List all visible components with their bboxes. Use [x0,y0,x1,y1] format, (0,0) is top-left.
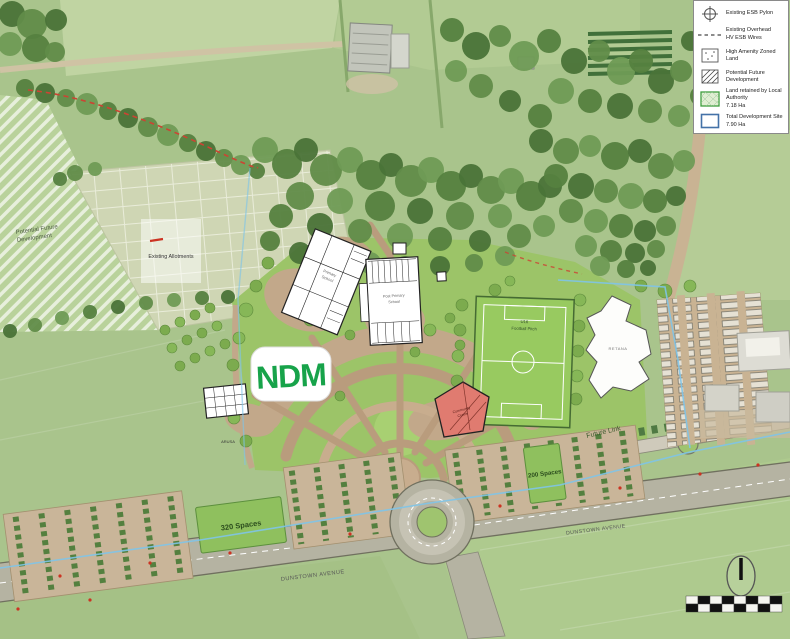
small-building-label: ARUSA [221,439,235,444]
overhead-wires-icon [697,30,723,40]
legend-item-overhead-wires: Existing OverheadHV ESB Wires [697,25,786,44]
legend-sublabel: 7.18 Ha [726,103,786,110]
esb-pylon-icon [697,6,723,22]
outbuilding-2 [437,272,446,281]
high-amenity-icon [697,48,723,63]
legend-item-total-site: Total Development Site7.90 Ha [697,112,786,131]
allotments-label: Existing Allotments [148,254,194,260]
outbuilding-1 [393,243,406,254]
legend-sublabel: HV ESB Wires [726,35,771,42]
north-arrow [727,556,755,596]
ndm-logo-text: NDM [255,356,327,396]
total-site-icon [697,113,723,129]
legend-label: Potential Future Development [726,70,765,83]
legend-item-esb-pylon: Existing ESB Pylon [697,4,786,23]
legend-label: High Amenity Zoned Land [726,49,776,62]
masterplan-drawing: 320 Spaces 200 Spaces U16 F [0,0,790,639]
future-development-icon [697,69,723,84]
scale-bar [686,596,782,612]
pitch-label-line1: U16 [520,319,529,324]
large-building-label: RETANA [609,346,628,351]
land-retained-icon [697,91,723,107]
pitch-label-line2: Football Pitch [511,326,537,332]
legend-item-land-retained: Land retained by Local Authority7.18 Ha [697,88,786,110]
legend-panel: Existing ESB Pylon Existing OverheadHV E… [693,0,789,134]
legend-label: Existing Overhead [726,27,771,33]
legend-label: Existing ESB Pylon [726,10,773,16]
legend-item-future-development: Potential Future Development [697,67,786,86]
legend-label: Total Development Site [726,114,783,120]
legend-label: Land retained by Local Authority [726,88,782,101]
site-masterplan: 320 Spaces 200 Spaces U16 F [0,0,790,639]
roundabout [390,480,474,564]
ndm-logo: NDM [251,347,331,401]
spaces-east-area: 200 Spaces [523,443,566,503]
legend-item-high-amenity: High Amenity Zoned Land [697,46,786,65]
legend-sublabel: 7.90 Ha [726,122,783,129]
school2-label-line2: School [388,300,400,305]
